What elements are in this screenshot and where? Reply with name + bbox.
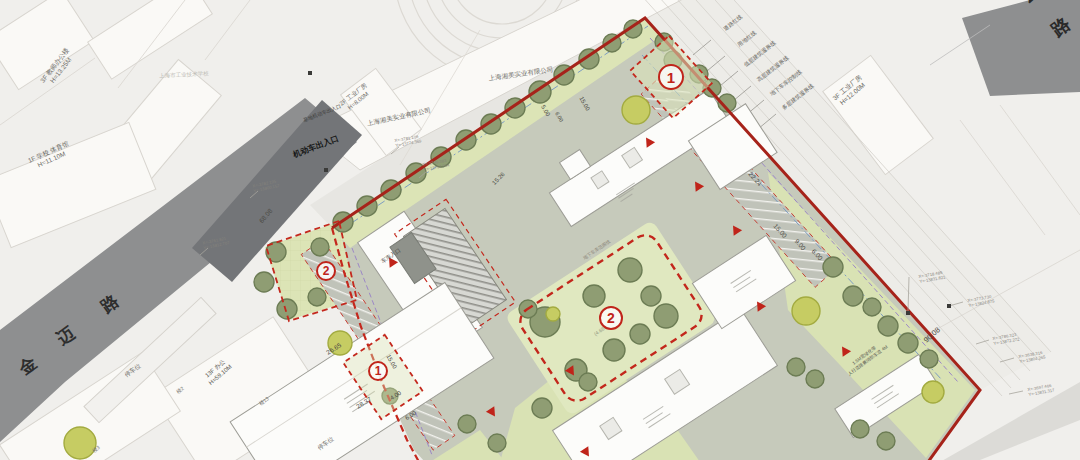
school-faint-label: 上海市工业技术学校 (159, 70, 209, 79)
dim-28-37: 28.37 (355, 395, 373, 411)
entrance-label-vehicle-sub: 基地机动车出入口 (302, 103, 342, 123)
building-label-factory-3f: 3F 工业厂房 H=12.00M (831, 73, 869, 108)
coord-7: X=-3786.323 Y=-13872.272 (992, 332, 1020, 347)
building-label-office-13f: 13F 办公 H=59.10M (203, 357, 234, 386)
coord-8: X=-3638.316 Y=-13804.265 (1018, 350, 1046, 365)
coord-9: X=-3697.466 Y=-13831.317 (1027, 383, 1055, 398)
parking-label-2: 停车位 (317, 436, 336, 453)
road-name-topright-char2: 路 (1047, 13, 1075, 42)
road-name-jinmai-char3: 路 (97, 290, 123, 317)
building-label-factory-2f: 2F 工业厂房 H=8.00M (339, 82, 374, 114)
road-name-topright-char1: 云 (1017, 0, 1045, 7)
entrance-label-garage: 车库入口 (380, 247, 402, 265)
company-label-xiangmei-2: 上海湘美实业有限公司 (488, 65, 553, 82)
dim-90-08: 90.08 (922, 325, 942, 345)
marker-1-north: 1 (658, 64, 684, 90)
marker-2-courtyard: 2 (599, 306, 623, 330)
line-label-midrise-setback: 多层建筑退界线 (781, 82, 816, 111)
building-label-teacher-office: 3F 教师办公楼 H=13.25M (39, 46, 78, 89)
road-name-jinmai-char2: 迈 (53, 322, 79, 349)
dim-15-26: 15.26 (491, 171, 507, 187)
note-green-firelane: 1.5M宽绿化带 人行道路兼消防车道 4M (843, 339, 888, 376)
building-no-13: 楼13 (258, 395, 270, 406)
dim-15-00-c: 15.00 (772, 222, 789, 240)
line-label-road-redline: 道路红线 (722, 14, 744, 33)
building-no-3: 楼3 (91, 444, 101, 454)
line-label-garage-control: 地下车库控制线 (769, 68, 804, 97)
dim-15-00-b: 15.00 (577, 96, 591, 113)
building-no-2: 楼2 (175, 385, 185, 395)
coord-5: X=-3718.485 Y=-13831.821 (918, 270, 946, 285)
coord-1: X=-3781.109 Y=-13774.369 (394, 134, 422, 149)
road-name-jinmai-char1: 金 (15, 352, 41, 379)
coord-6: X=-3773.730 Y=-13824.875 (967, 294, 995, 309)
parking-label-1: 停车位 (124, 363, 143, 380)
entrance-label-vehicle: 机动车出入口 (292, 134, 340, 161)
line-label-lowrise-setback: 低层建筑退界线 (743, 39, 778, 68)
line-label-highrise-setback: 高层建筑退界线 (756, 54, 791, 83)
marker-1-south: 1 (368, 361, 388, 381)
coord-4: X=-3761.821 Y=-13812.707 (202, 235, 230, 251)
dim-6-00-a: 6.00 (404, 410, 418, 423)
dim-68-08: 68.08 (258, 207, 275, 225)
dim-6-00-b: 6.00 (553, 111, 564, 124)
dim-9-00: 9.00 (793, 238, 808, 253)
dim-22-24: 22.24 (747, 170, 764, 188)
dim-26-65: 26.65 (325, 341, 343, 357)
line-label-underground-garage: 地下车库范围线 (582, 239, 611, 261)
dim-6-00-c: 6.00 (810, 248, 825, 263)
marker-2-west: 2 (316, 261, 336, 281)
dim-5-00: 5.00 (539, 104, 551, 118)
dim-4-00: 4.00 (389, 390, 403, 403)
site-plan: 金迈路云路3F 教师办公楼 H=13.25M1F 学校 体育馆 H=11.10M… (0, 0, 1080, 460)
coord-3: X=-3782.195 Y=-13800.157 (252, 178, 280, 194)
label-layer: 金迈路云路3F 教师办公楼 H=13.25M1F 学校 体育馆 H=11.10M… (0, 0, 1080, 460)
coord-2: X=-3749.383 Y=-13764.964 (422, 158, 450, 173)
line-label-site-redline: 用地红线 (736, 30, 758, 49)
building-label-school-gym: 1F 学校 体育馆 H=11.10M (27, 140, 74, 173)
company-label-xiangmei-1: 上海湘美实业有限公司 (366, 106, 431, 127)
